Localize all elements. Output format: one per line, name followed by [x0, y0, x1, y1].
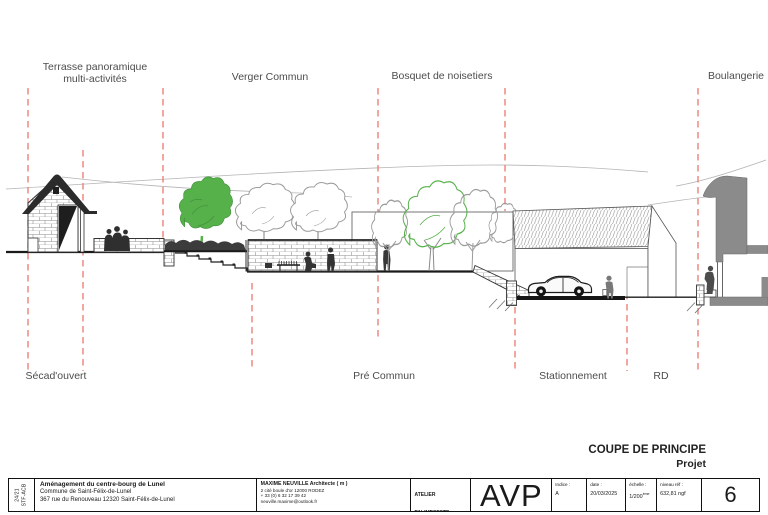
caption-subtitle: Projet: [588, 458, 706, 471]
zone-label-secadou: Sécad'ouvert: [14, 370, 98, 382]
secadou-gable-window: [53, 187, 59, 194]
level-label: niveau réf :: [660, 482, 698, 487]
indice-value: A: [555, 491, 583, 497]
scale-label: échelle :: [629, 482, 653, 487]
zone-label-pre-commun: Pré Commun: [342, 370, 426, 382]
zone-label-rd: RD: [641, 370, 681, 382]
phase-cell: AVP: [471, 479, 552, 511]
level-cell: niveau réf : 632,81 ngf: [657, 479, 702, 511]
phase-label: AVP: [480, 480, 543, 511]
boulangerie-floor-slab: [710, 297, 768, 306]
entry-wall-post: [697, 285, 705, 305]
zone-label-bosquet: Bosquet de noisetiers: [368, 70, 516, 82]
date-value: 20/03/2025: [590, 491, 622, 497]
barn-gable: [648, 206, 676, 297]
zone-label-verger: Verger Commun: [200, 71, 340, 83]
architect-email: neuville.maxime@outlook.fr: [261, 499, 407, 505]
planting-bed: [165, 240, 246, 252]
client-cell: Aménagement du centre-bourg de Lunel Com…: [35, 479, 257, 511]
date-cell: date : 20/03/2025: [587, 479, 626, 511]
scale-value: 1/200: [629, 494, 643, 500]
scale-cell: échelle : 1/200ème: [626, 479, 657, 511]
project-title: Aménagement du centre-bourg de Lunel: [40, 481, 251, 489]
project-ref-code: STF-ACB: [21, 484, 28, 507]
project-ref-cell: 24/21 STF-ACB: [9, 479, 35, 511]
planter-box: [265, 263, 272, 268]
sheet-number-cell: 6: [702, 479, 759, 511]
secadou-building: [22, 175, 97, 253]
title-block: 24/21 STF-ACB Aménagement du centre-bour…: [8, 478, 760, 512]
consultant1-name: ATELIER PALIMPSESTE: [414, 492, 449, 511]
zone-label-stationnement: Stationnement: [531, 370, 615, 382]
boulangerie-door-frame: [718, 262, 723, 297]
level-value: 632,81 ngf: [660, 491, 698, 497]
terrain-profile-lines: [6, 160, 766, 205]
architect-cell: MAXIME NEUVILLE Architecte ( m ) 2 cité …: [257, 479, 412, 511]
boulangerie-wall-section: [703, 176, 747, 262]
wall-post: [507, 281, 517, 306]
indice-cell: Indice : A: [552, 479, 587, 511]
barn-roof: [513, 206, 652, 249]
boulangerie-rear-wall: [762, 277, 768, 297]
person-entering-boulangerie: [705, 266, 715, 294]
boulangerie-building: [687, 176, 768, 313]
drawing-sheet: Terrasse panoramique multi-activités Ver…: [0, 0, 768, 515]
drawing-caption: COUPE DE PRINCIPE Projet: [588, 444, 706, 470]
date-label: date :: [590, 482, 622, 487]
caption-title: COUPE DE PRINCIPE: [588, 444, 706, 458]
zone-label-boulangerie: Boulangerie: [706, 70, 766, 82]
secadou-porch-post: [81, 206, 85, 252]
client-address: 367 rue du Renouveau 12320 Saint-Félix-d…: [40, 497, 251, 505]
boulangerie-floor-slab-upper: [747, 246, 768, 254]
scale-sup: ème: [643, 492, 650, 496]
consultants-cell: ATELIER PALIMPSESTE Paysagiste DPLG GE I…: [411, 479, 471, 511]
sheet-number: 6: [724, 484, 736, 506]
zone-label-terrasse: Terrasse panoramique multi-activités: [10, 61, 180, 86]
people-group-terrace: [104, 226, 130, 251]
indice-label: Indice :: [555, 482, 583, 487]
client-name: Commune de Saint-Félix-de-Lunel: [40, 489, 251, 497]
verger-gray-trees: [235, 183, 347, 240]
